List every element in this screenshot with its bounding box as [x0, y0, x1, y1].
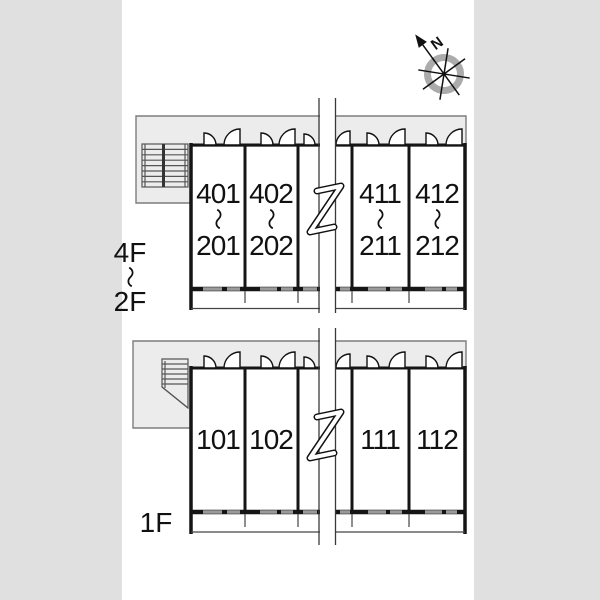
- room-number: 402: [249, 178, 293, 209]
- room-number: 212: [415, 230, 459, 261]
- room-number: 401: [196, 178, 240, 209]
- room-range-tilde: ～: [205, 208, 230, 230]
- north-label: N: [428, 34, 447, 54]
- floor-range-tilde: ～: [117, 266, 142, 288]
- lower-floor-label: 1F: [140, 507, 173, 538]
- upper-staircase-icon: [142, 144, 188, 187]
- lower-building: 101 102 111 112 1F: [133, 328, 466, 545]
- floor-plan-drawing: 401 ～ 201 402 ～ 202 411 ～ 211 412 ～ 212 …: [0, 0, 600, 600]
- upper-building: 401 ～ 201 402 ～ 202 411 ～ 211 412 ～ 212 …: [114, 98, 466, 317]
- room-range-tilde: ～: [424, 208, 449, 230]
- compass-icon: N: [394, 19, 480, 110]
- room-number: 412: [415, 178, 459, 209]
- floor-label-top: 4F: [114, 237, 147, 268]
- upper-floor-range-label: 4F ～ 2F: [114, 237, 147, 317]
- room-number: 211: [359, 230, 401, 261]
- room-range-tilde: ～: [367, 208, 392, 230]
- floor-label-bottom: 2F: [114, 286, 147, 317]
- room-range-tilde: ～: [258, 208, 283, 230]
- floor-plan-page: { "title": "apartment-building-floor-pla…: [0, 0, 600, 600]
- room-number: 101: [196, 424, 240, 455]
- room-number: 202: [249, 230, 293, 261]
- room-number: 102: [249, 424, 293, 455]
- room-number: 411: [359, 178, 401, 209]
- room-number: 201: [196, 230, 240, 261]
- room-number: 111: [360, 424, 400, 455]
- room-number: 112: [416, 424, 458, 455]
